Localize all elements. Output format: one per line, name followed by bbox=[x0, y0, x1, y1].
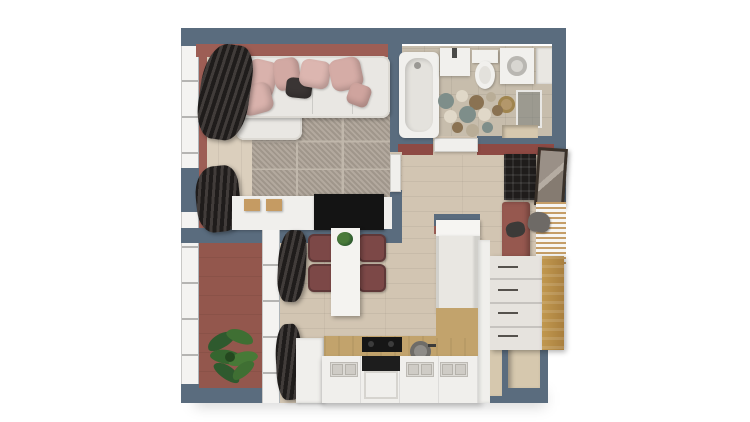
bathroom-right-wall bbox=[552, 28, 566, 168]
dining-chair bbox=[358, 264, 386, 292]
leaning-mirror bbox=[534, 147, 568, 207]
shoe-cabinet bbox=[504, 154, 536, 200]
cabinet-grille bbox=[406, 362, 434, 377]
floor-plan-render bbox=[0, 0, 750, 422]
table-plant bbox=[337, 232, 353, 246]
mosaic-dot bbox=[478, 108, 491, 121]
entry-niche-right bbox=[508, 344, 540, 388]
shower-screen bbox=[516, 90, 542, 128]
mosaic-dot bbox=[438, 93, 454, 109]
sofa-pillow-blush bbox=[298, 58, 332, 91]
mosaic-dot bbox=[482, 122, 493, 133]
sideboard-right-end bbox=[384, 197, 392, 229]
washing-machine-drum bbox=[507, 56, 527, 76]
dining-chair bbox=[358, 234, 386, 262]
tall-cabinet-body bbox=[436, 236, 480, 312]
dresser-handle bbox=[498, 312, 518, 314]
top-wall bbox=[181, 28, 566, 44]
bathroom-door-leaf bbox=[434, 138, 478, 152]
washbasin-faucet bbox=[452, 48, 457, 58]
mosaic-dot bbox=[459, 106, 476, 123]
tv bbox=[314, 194, 384, 230]
mosaic-dot bbox=[452, 122, 463, 133]
bathtub-faucet bbox=[414, 62, 421, 69]
kitchen-counter bbox=[324, 336, 482, 356]
storage-box bbox=[244, 199, 260, 211]
kitchen-bench-left bbox=[296, 338, 324, 403]
dresser-handle bbox=[498, 335, 518, 337]
tall-cabinet-wood-shelf bbox=[436, 308, 482, 338]
bath-side-cabinet bbox=[536, 48, 552, 84]
bathtub-basin bbox=[405, 58, 433, 132]
dresser-handle bbox=[498, 289, 518, 291]
plant-center bbox=[225, 352, 235, 362]
mosaic-dot bbox=[456, 90, 468, 102]
toilet-seat bbox=[479, 66, 491, 84]
burner bbox=[368, 341, 374, 347]
living-door-leaf bbox=[390, 154, 401, 192]
balcony-bottom-wall bbox=[181, 388, 268, 403]
mosaic-dot bbox=[492, 105, 503, 116]
tall-cabinet-top bbox=[436, 220, 480, 236]
sink-faucet bbox=[428, 344, 436, 347]
storage-box bbox=[266, 199, 282, 211]
mosaic-dot bbox=[486, 92, 496, 102]
bath-wall-shelf bbox=[502, 125, 538, 138]
mosaic-dot bbox=[444, 110, 457, 123]
living-window-strip bbox=[181, 46, 199, 170]
burner bbox=[388, 341, 394, 347]
oven-door bbox=[364, 371, 398, 399]
dresser-wood-side bbox=[542, 256, 564, 350]
cabinet-grille bbox=[440, 362, 468, 377]
mosaic-dot bbox=[466, 124, 479, 137]
dresser-handle bbox=[498, 266, 518, 268]
cabinet-grille bbox=[330, 362, 358, 377]
oven bbox=[362, 356, 400, 371]
kitchen-right-edge bbox=[478, 240, 490, 403]
